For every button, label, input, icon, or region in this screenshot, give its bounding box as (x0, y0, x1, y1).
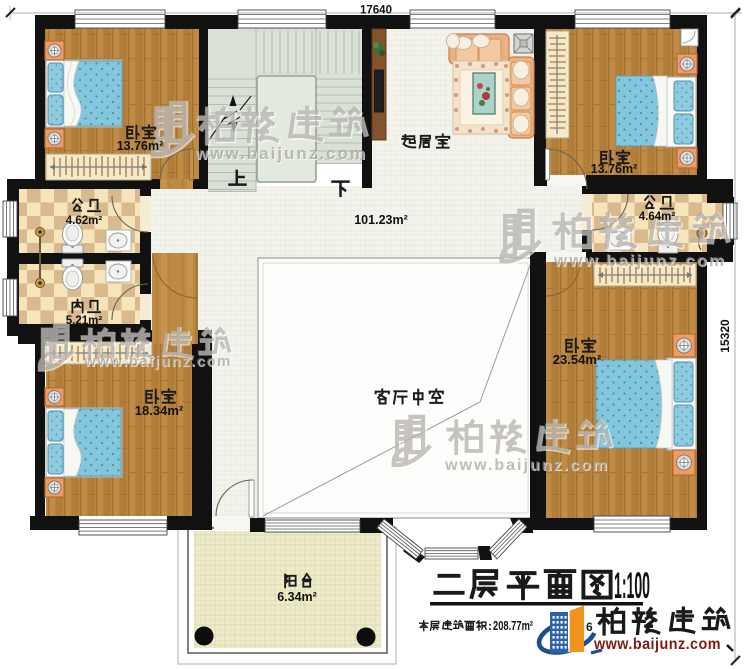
svg-text::: : (488, 619, 492, 633)
svg-text:6.34m²: 6.34m² (277, 590, 317, 604)
svg-text:www.baijunz.com: www.baijunz.com (194, 144, 367, 163)
svg-text:18.34m²: 18.34m² (135, 403, 184, 418)
svg-text:1:100: 1:100 (614, 565, 650, 606)
svg-text:17640: 17640 (360, 5, 392, 17)
svg-text:15320: 15320 (718, 319, 732, 353)
svg-text:101.23m²: 101.23m² (354, 213, 408, 227)
svg-text:4.64m²: 4.64m² (639, 211, 676, 223)
svg-text:www.baijunz.com: www.baijunz.com (553, 251, 726, 270)
svg-text:208.77m²: 208.77m² (493, 619, 533, 633)
svg-text:4.62m²: 4.62m² (66, 215, 103, 227)
svg-text:13.76m²: 13.76m² (591, 162, 638, 176)
svg-text:13.76m²: 13.76m² (117, 139, 164, 153)
svg-text:6: 6 (586, 620, 593, 634)
svg-text:5.21m²: 5.21m² (66, 315, 103, 327)
svg-text:www.baijunz.com: www.baijunz.com (444, 457, 609, 474)
svg-text:www.baijunz.com: www.baijunz.com (83, 353, 232, 370)
svg-text:www.baijunz.com: www.baijunz.com (593, 636, 721, 653)
svg-text:23.54m²: 23.54m² (553, 352, 602, 367)
